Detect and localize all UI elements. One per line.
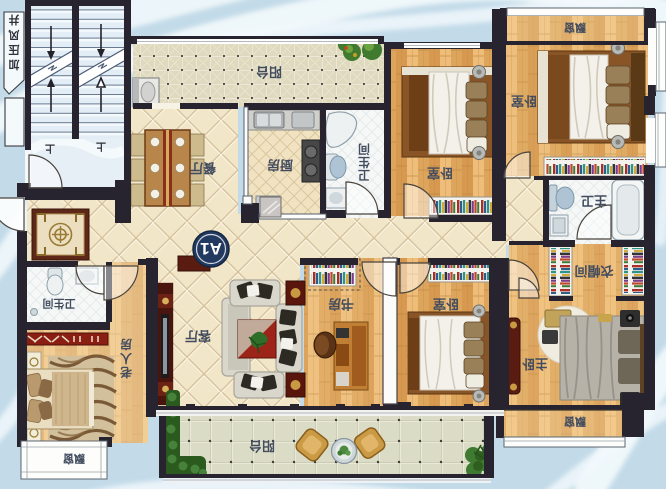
svg-text:飘窗: 飘窗 <box>564 21 586 35</box>
svg-text:客厅: 客厅 <box>185 329 211 344</box>
svg-text:餐厅: 餐厅 <box>190 161 217 176</box>
svg-text:阳台: 阳台 <box>249 439 275 454</box>
svg-text:主卫: 主卫 <box>581 194 607 209</box>
svg-text:卧室: 卧室 <box>511 94 537 109</box>
svg-text:井: 井 <box>9 13 20 27</box>
svg-text:间: 间 <box>358 142 370 157</box>
svg-text:主卧: 主卧 <box>522 357 548 372</box>
svg-text:衣帽间: 衣帽间 <box>574 264 613 279</box>
svg-text:老: 老 <box>120 365 132 380</box>
svg-text:卧室: 卧室 <box>427 166 453 181</box>
svg-text:A1: A1 <box>200 239 222 258</box>
svg-text:上: 上 <box>96 140 106 153</box>
svg-text:压: 压 <box>9 43 20 57</box>
svg-text:房: 房 <box>120 337 132 352</box>
svg-text:人: 人 <box>119 351 132 366</box>
svg-text:上: 上 <box>45 142 55 155</box>
svg-text:风: 风 <box>9 28 20 42</box>
svg-text:飘窗: 飘窗 <box>564 415 586 429</box>
svg-text:卫生间: 卫生间 <box>43 297 76 311</box>
svg-text:书房: 书房 <box>328 297 354 312</box>
svg-text:厨房: 厨房 <box>267 158 293 173</box>
svg-text:飘窗: 飘窗 <box>63 452 85 466</box>
svg-text:卧室: 卧室 <box>433 297 459 312</box>
svg-text:卫: 卫 <box>358 168 370 182</box>
svg-text:加: 加 <box>9 58 21 72</box>
svg-text:生: 生 <box>358 155 370 170</box>
svg-text:阳台: 阳台 <box>256 65 282 80</box>
